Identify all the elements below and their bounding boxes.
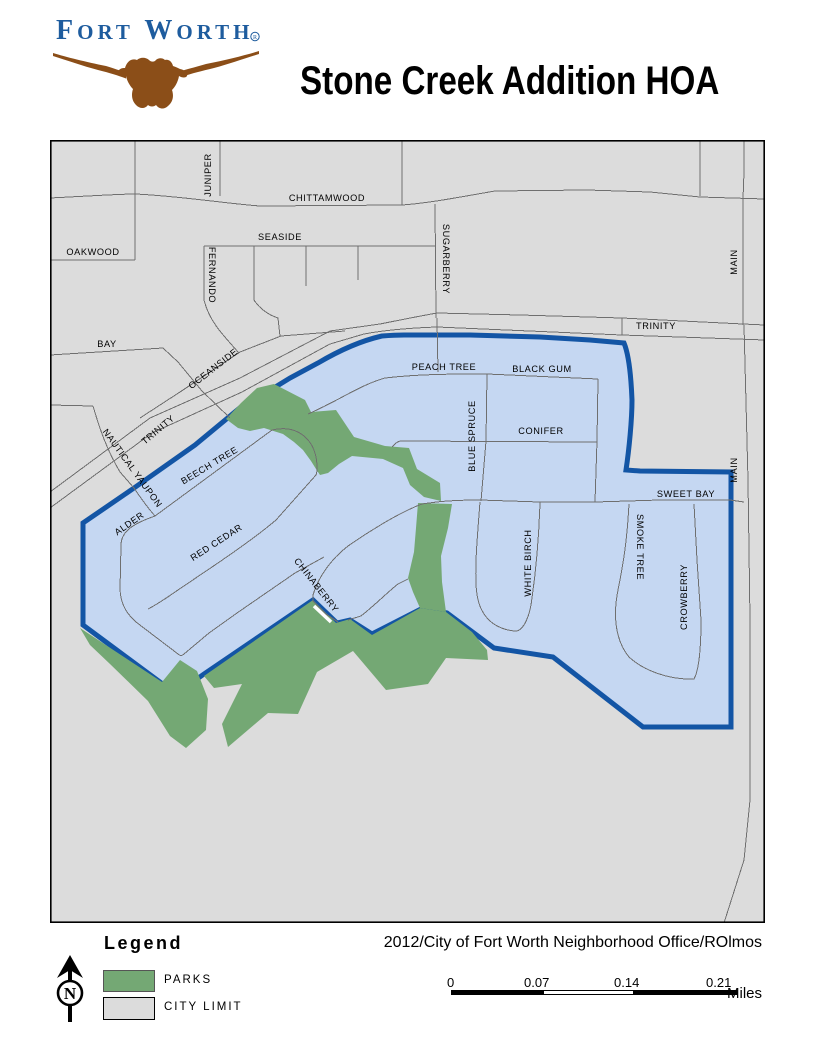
svg-text:TRINITY: TRINITY [636,321,676,331]
svg-text:CHITTAMWOOD: CHITTAMWOOD [289,193,365,203]
svg-text:CROWBERRY: CROWBERRY [679,564,689,630]
svg-text:R: R [253,35,257,41]
svg-text:OAKWOOD: OAKWOOD [66,247,119,257]
svg-text:BLACK GUM: BLACK GUM [512,364,572,374]
svg-text:SUGARBERRY: SUGARBERRY [441,224,451,294]
svg-text:FERNANDO: FERNANDO [207,247,217,303]
svg-text:BAY: BAY [97,339,117,349]
svg-text:WHITE BIRCH: WHITE BIRCH [523,529,533,596]
svg-text:JUNIPER: JUNIPER [203,153,213,197]
svg-text:PEACH TREE: PEACH TREE [412,362,477,372]
svg-text:SWEET BAY: SWEET BAY [657,489,715,499]
svg-text:N: N [64,984,77,1003]
svg-text:CONIFER: CONIFER [518,426,564,436]
svg-text:MAIN: MAIN [729,249,739,274]
svg-text:BLUE SPRUCE: BLUE SPRUCE [467,400,477,471]
svg-text:SEASIDE: SEASIDE [258,232,302,242]
svg-text:MAIN: MAIN [729,457,739,482]
svg-text:SMOKE TREE: SMOKE TREE [635,514,645,580]
svg-text:FORT WORTH: FORT WORTH [56,15,254,46]
